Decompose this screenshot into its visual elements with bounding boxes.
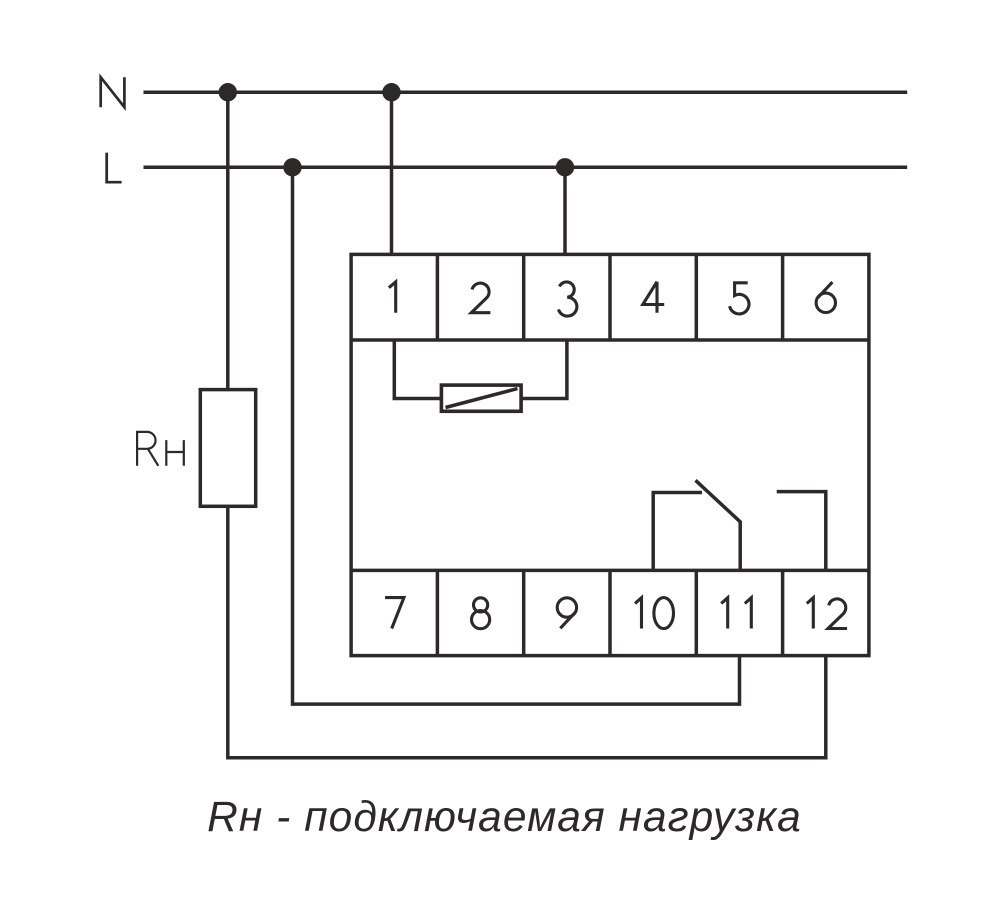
svg-text:Rн - подключаемая нагрузка: Rн - подключаемая нагрузка	[207, 794, 802, 841]
